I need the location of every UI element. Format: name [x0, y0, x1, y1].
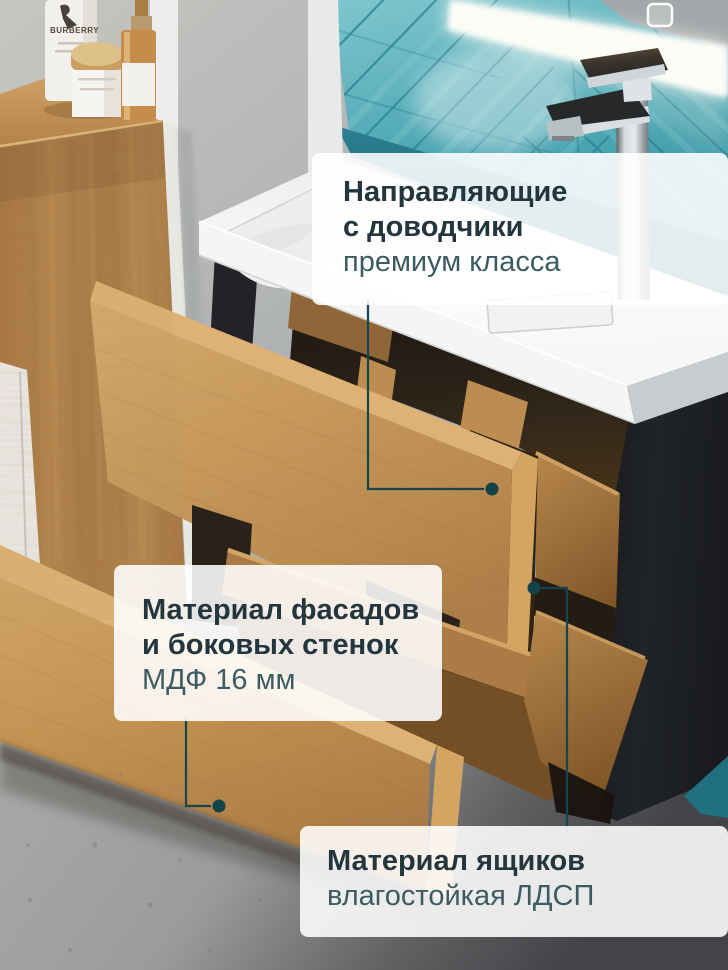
svg-text:BURBERRY: BURBERRY [50, 26, 99, 35]
